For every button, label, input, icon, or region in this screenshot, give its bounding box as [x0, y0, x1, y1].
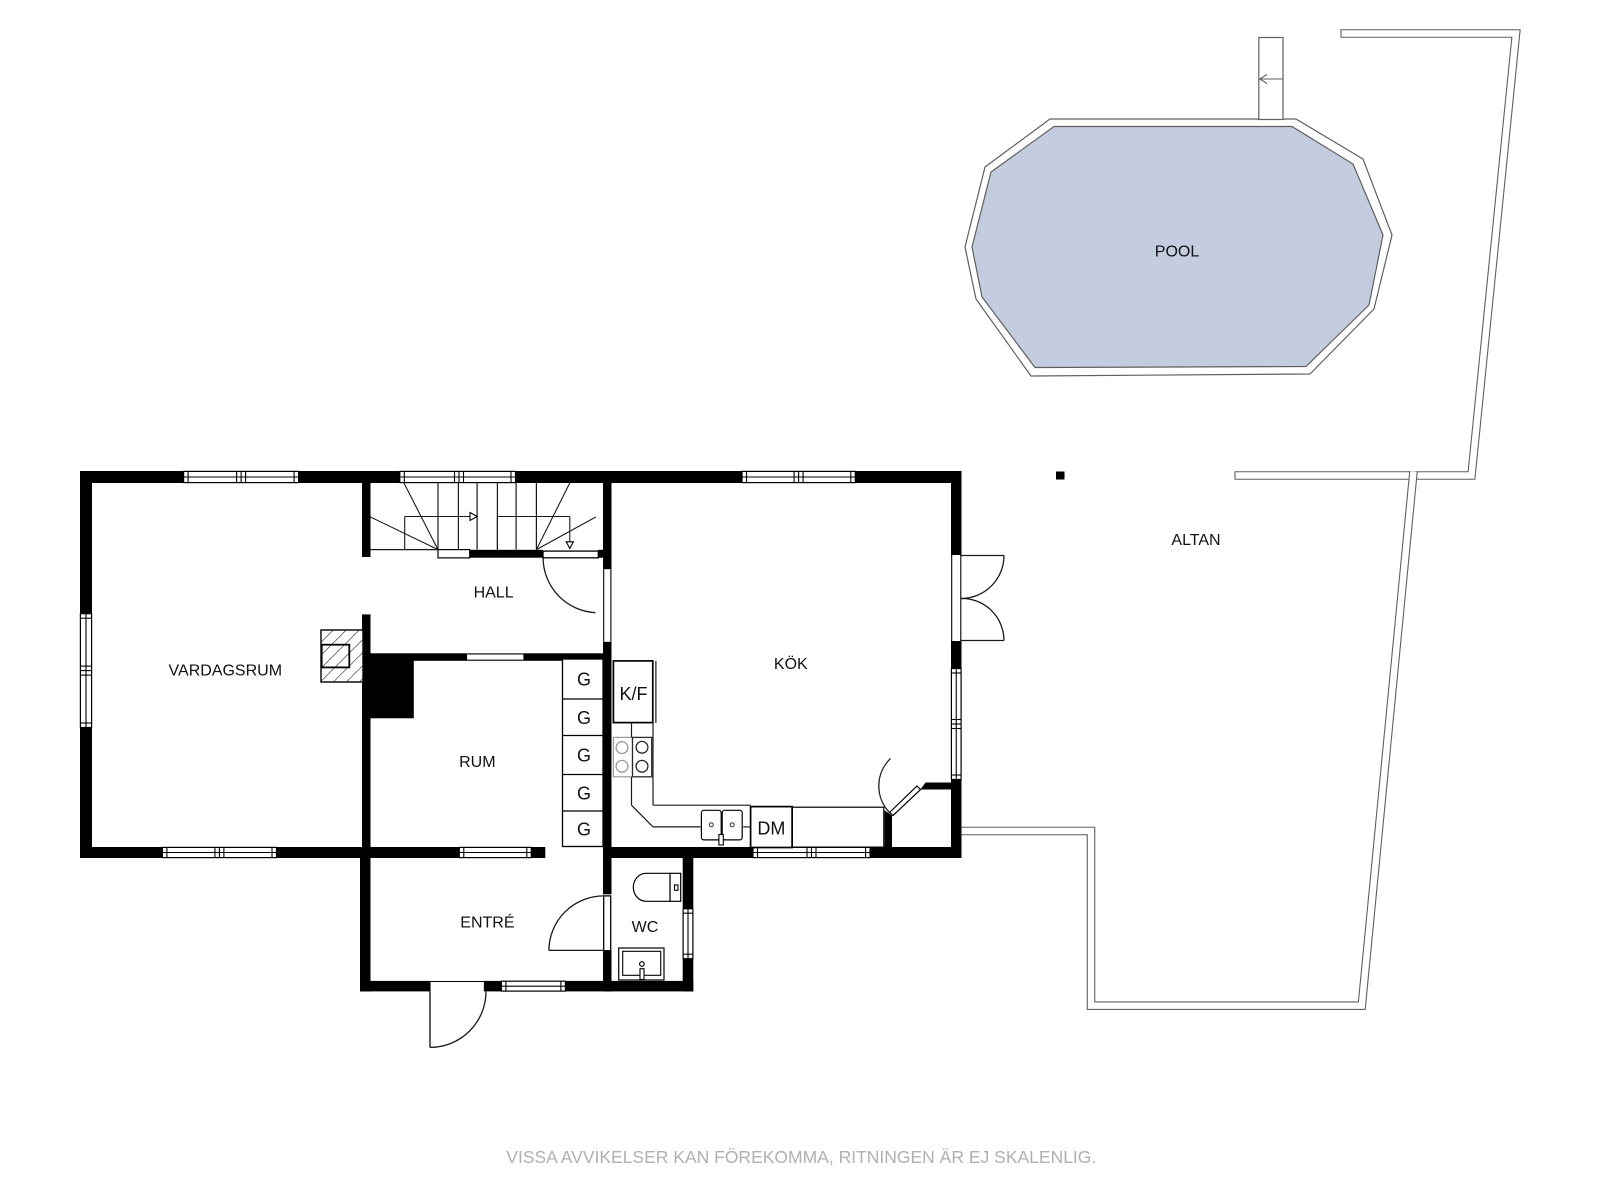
- svg-text:ALTAN: ALTAN: [1171, 532, 1220, 549]
- svg-text:G: G: [577, 783, 591, 803]
- svg-text:G: G: [577, 708, 591, 728]
- svg-text:KÖK: KÖK: [774, 655, 808, 673]
- svg-text:ENTRÉ: ENTRÉ: [460, 913, 514, 932]
- svg-text:WC: WC: [632, 919, 659, 936]
- svg-text:RUM: RUM: [459, 754, 495, 771]
- svg-text:HALL: HALL: [474, 585, 514, 602]
- svg-text:G: G: [577, 670, 591, 690]
- svg-text:VARDAGSRUM: VARDAGSRUM: [169, 663, 283, 680]
- svg-text:DM: DM: [757, 819, 785, 839]
- svg-text:VISSA AVVIKELSER KAN FÖREKOMMA: VISSA AVVIKELSER KAN FÖREKOMMA, RITNINGE…: [506, 1147, 1096, 1167]
- svg-text:K/F: K/F: [619, 684, 647, 704]
- svg-text:POOL: POOL: [1155, 244, 1200, 261]
- svg-text:G: G: [577, 819, 591, 839]
- svg-text:G: G: [577, 746, 591, 766]
